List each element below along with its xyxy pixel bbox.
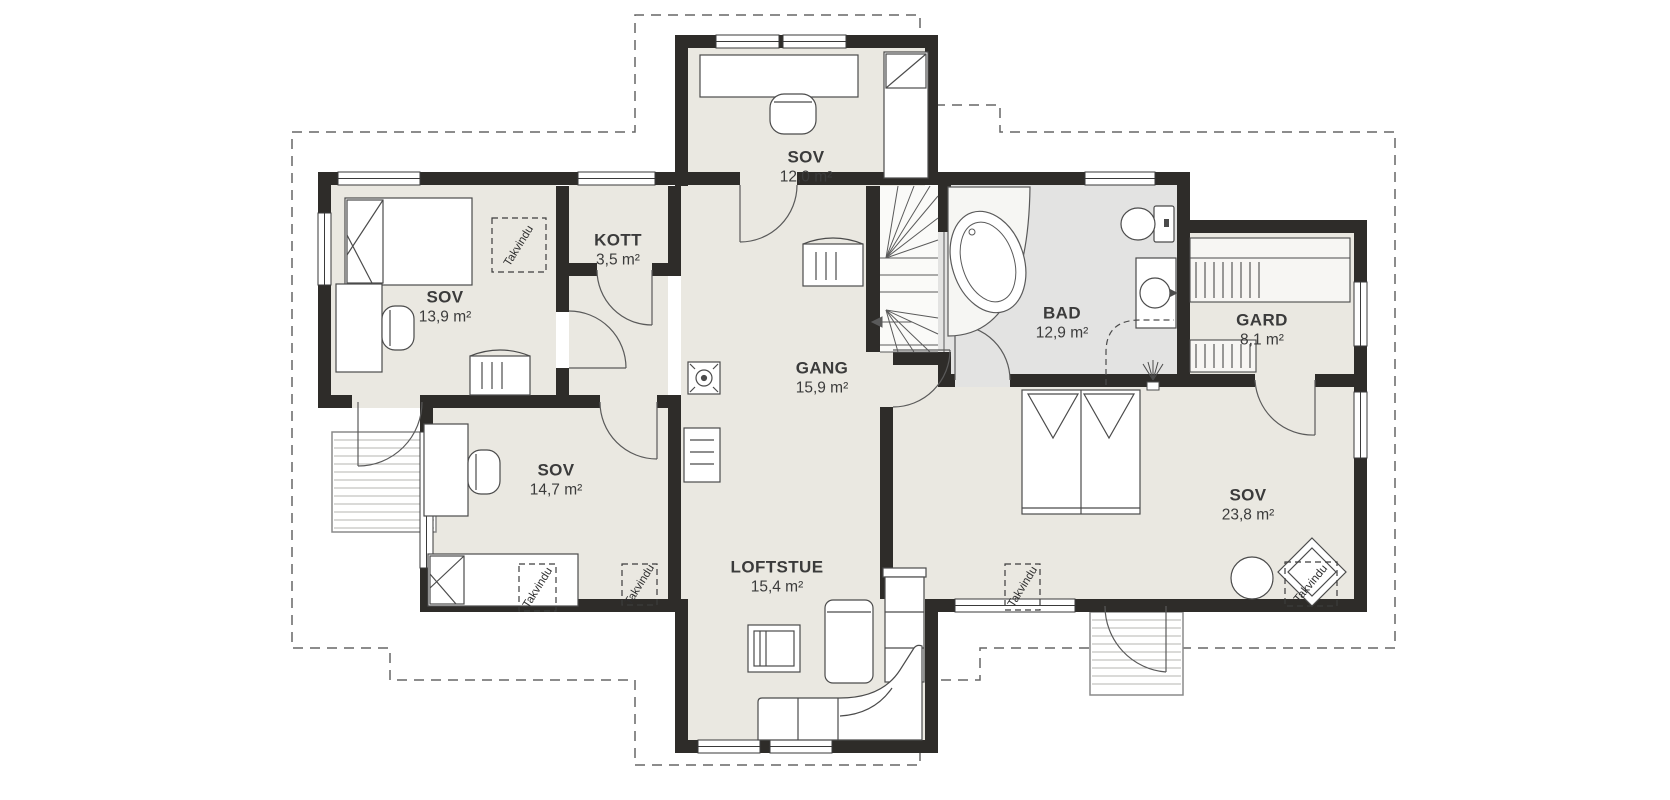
tv-bench xyxy=(748,625,800,672)
double-bed xyxy=(1022,390,1140,514)
window xyxy=(770,740,832,753)
window xyxy=(698,740,760,753)
window xyxy=(716,35,779,48)
wardrobe xyxy=(1190,340,1256,372)
desk xyxy=(336,284,382,372)
window xyxy=(1354,282,1367,346)
desk-chair xyxy=(382,306,414,350)
toilet xyxy=(1121,206,1174,242)
bed xyxy=(884,52,928,178)
desk xyxy=(700,55,858,97)
wardrobe xyxy=(1190,238,1350,302)
window xyxy=(318,213,331,285)
desk xyxy=(424,424,468,516)
window xyxy=(783,35,846,48)
sofa xyxy=(825,600,873,683)
window xyxy=(1085,172,1155,185)
dresser xyxy=(684,428,720,482)
sink xyxy=(1136,258,1178,328)
window xyxy=(1354,392,1367,458)
balcony-right xyxy=(1090,612,1183,695)
round-table xyxy=(1231,557,1273,599)
dresser xyxy=(470,350,530,395)
window xyxy=(338,172,420,185)
desk-chair xyxy=(468,450,500,494)
chimney-shaft xyxy=(688,362,720,394)
window xyxy=(578,172,655,185)
desk-chair xyxy=(770,94,816,134)
bed xyxy=(345,198,472,285)
dresser xyxy=(803,238,863,286)
floor-plan: SOV12,0 m² KOTT3,5 m² SOV13,9 m² GANG15,… xyxy=(0,0,1670,800)
floor-plan-drawing xyxy=(0,0,1670,800)
